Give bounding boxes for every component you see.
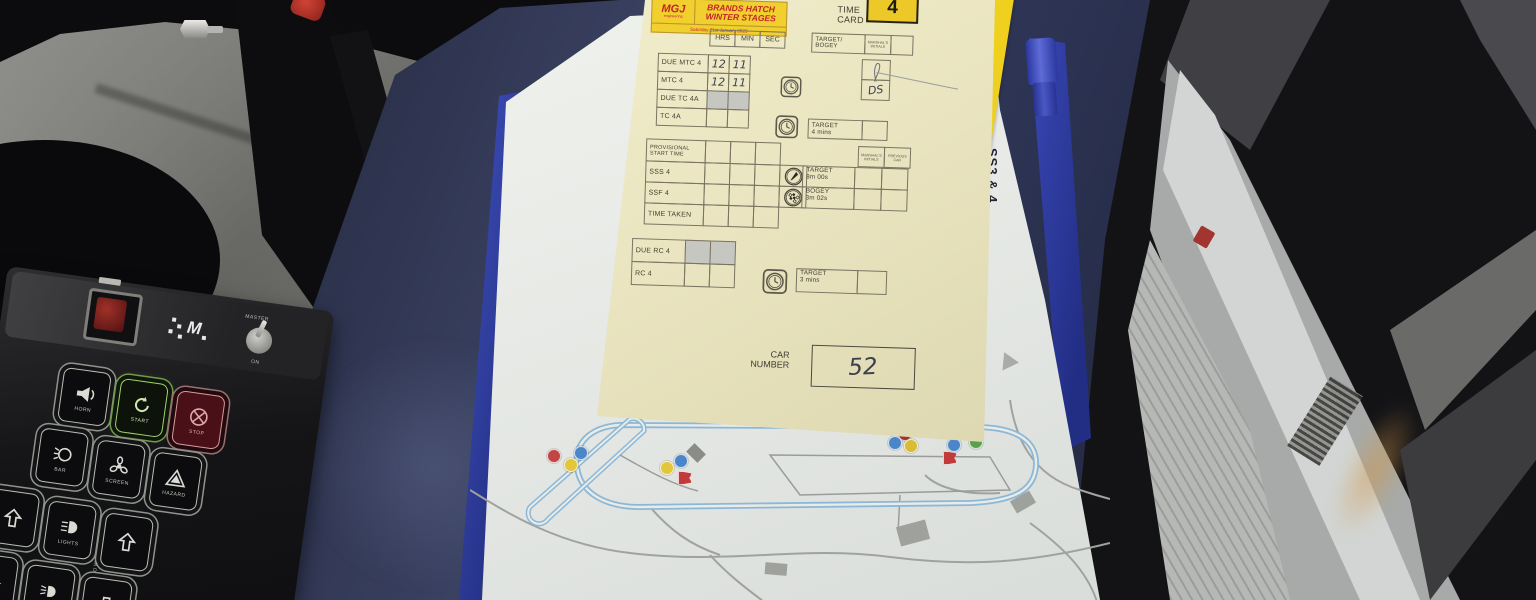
empty-cell [703,183,730,206]
window-up-left-button [0,488,40,548]
target-bogey-header: TARGET/ BOGEY MARSHAL'S INITIALS [812,34,914,56]
empty-cell [727,109,750,129]
car-number-label: CAR NUMBER [741,349,790,370]
clock-icon [774,114,799,139]
hrs-header: HRS [709,29,736,47]
empty-cell [754,164,781,187]
map-marker-control [660,461,674,475]
map-marker-control [904,439,918,453]
arrow-down-icon [92,592,119,600]
empty-cell [753,185,780,208]
stop-label: STOP [189,428,205,436]
empty-cell [880,189,908,212]
lights-button: LIGHTS [42,500,97,560]
car-number-box: 52 [811,345,916,390]
wiper-button: WIPER [21,564,76,600]
mtc-min: 11 [728,73,751,93]
car-number-value: 52 [848,354,878,381]
shaded-cell [727,91,750,111]
start-button: START [114,378,169,438]
auxiliary-switch-panel: M MASTER ON HORN START STOP BAR SCREEN [0,266,335,600]
map-marker-sos [888,436,902,450]
empty-cell [703,204,730,227]
frame-bolt [180,20,210,38]
event-logo: MGJ engineering [651,0,696,25]
engine-stop-icon [185,403,212,430]
checker-square [172,317,177,322]
map-marker-radio [547,449,561,463]
marshal-initials-signature: DS [867,83,884,98]
empty-cell [861,120,888,141]
clock-icon [761,268,788,295]
shaded-cell [706,90,729,110]
stop-button: STOP [171,390,226,450]
empty-cell [857,270,888,295]
rc-table: DUE RC 4 RC 4 [632,239,736,288]
sec-header: SEC [759,31,786,49]
frame-bolt-stem [207,26,223,33]
empty-cell [890,35,914,56]
time-card-number: 4 [887,0,898,19]
wiper-icon [36,577,63,600]
map-marker-control [564,458,578,472]
table-row: RC 4 [632,262,736,288]
arrow-up-icon [0,505,27,532]
empty-cell [854,167,883,190]
empty-cell [753,206,780,229]
shaded-cell [709,240,736,265]
tc-target-box: TARGET 4 mins [808,120,888,141]
pen-cap [1025,37,1058,85]
mtc-hrs: 12 [707,72,730,92]
provisional-start-label: PROVISIONAL START TIME [646,138,707,163]
checkered-flag-icon [783,187,803,207]
start-flag-icon [783,166,803,186]
due-mtc-hrs: 12 [707,54,730,74]
rally-car-interior-photo: M MASTER ON HORN START STOP BAR SCREEN [0,0,1536,600]
checker-square [178,334,183,339]
m-logo-letter: M [186,318,203,340]
shaded-cell [684,240,711,265]
rally-time-card: MGJ engineering BRANDS HATCH WINTER STAG… [595,0,995,444]
empty-cell [853,188,882,211]
due-mtc-min: 11 [728,55,751,75]
empty-cell [728,205,755,228]
empty-cell [728,184,755,207]
checker-square [177,324,182,329]
pen-body [1032,81,1057,117]
start-label: START [130,416,149,425]
screen-heater-button: SCREEN [91,439,146,499]
empty-cell [704,162,731,185]
time-card-title: TIME CARD [837,4,864,25]
time-card-number-box: 4 [866,0,919,24]
horn-button: HORN [57,367,112,427]
empty-cell [709,263,736,288]
previous-car-header: PREVIOUS CAR [884,147,912,169]
signature-cell-bottom: DS [861,79,891,101]
empty-cell [755,142,782,166]
sss-target: TARGET 8m 00s [802,165,856,189]
mtc-tc-table: DUE MTC 4 12 11 MTC 4 12 11 DUE TC 4A TC… [657,54,751,129]
ssf-bogey: BOGEY 3m 02s [801,186,855,210]
checker-square [202,336,207,341]
event-logo-sub: engineering [664,14,683,19]
window-down-right-button [78,576,133,600]
empty-cell [730,141,757,165]
lamp-icon [49,440,76,467]
stage-target-bogey: TARGET 8m 00s BOGEY 3m 02s [802,166,908,211]
due-rc-label: DUE RC 4 [631,238,686,264]
arrow-down-icon [0,568,5,595]
empty-cell [881,168,909,191]
horn-label: HORN [74,405,91,413]
light-bar-button: BAR [34,427,89,487]
table-row: TC 4A [657,108,750,129]
tc-label: TC 4A [656,107,708,128]
m-sport-logo: M [166,311,226,354]
target-bogey-label: TARGET/ BOGEY [811,33,866,55]
signature-cell-top [861,59,891,81]
marshals-initials-header: MARSHAL'S INITIALS [864,34,892,55]
window-down-left-button [0,552,19,600]
clock-icon [780,76,803,99]
marshal-signature-box: DS [862,60,891,101]
checker-square [168,329,173,334]
window-up-right-button [99,512,154,572]
bar-label: BAR [54,466,67,474]
marshals-initials-header: MARSHAL'S INITIALS [858,146,886,168]
empty-cell [706,108,729,128]
pen-loop-mark [862,60,892,82]
stage-initials-headers: MARSHAL'S INITIALS PREVIOUS CAR [859,147,912,169]
map-marker-sos [674,454,688,468]
arrow-up-icon [113,529,140,556]
tc-target-label: TARGET 4 mins [807,118,863,140]
rc-label: RC 4 [631,261,686,287]
time-column-headers: HRS MIN SEC [710,30,785,48]
table-row: BOGEY 3m 02s [802,187,908,211]
fan-icon [106,452,133,479]
on-label: ON [251,359,260,366]
time-taken-label: TIME TAKEN [644,202,705,226]
blue-pen [1025,37,1064,119]
headlight-icon [57,513,84,540]
empty-cell [729,163,756,186]
empty-cell [705,140,732,164]
horn-icon [71,380,98,407]
rc-target-box: TARGET 3 mins [797,269,888,295]
hazard-triangle-icon [163,464,190,491]
min-header: MIN [734,30,761,48]
hazard-button: HAZARD [148,451,203,511]
stage-table: PROVISIONAL START TIME SSS 4 SSF 4 [645,139,809,229]
engine-start-icon [128,391,155,418]
empty-cell [684,263,711,288]
rc-target-label: TARGET 3 mins [796,268,859,294]
map-marker-sos [574,446,588,460]
event-title-line2: WINTER STAGES [705,12,775,23]
rocker-red-lens [93,297,127,333]
red-rocker-switch [83,288,144,347]
